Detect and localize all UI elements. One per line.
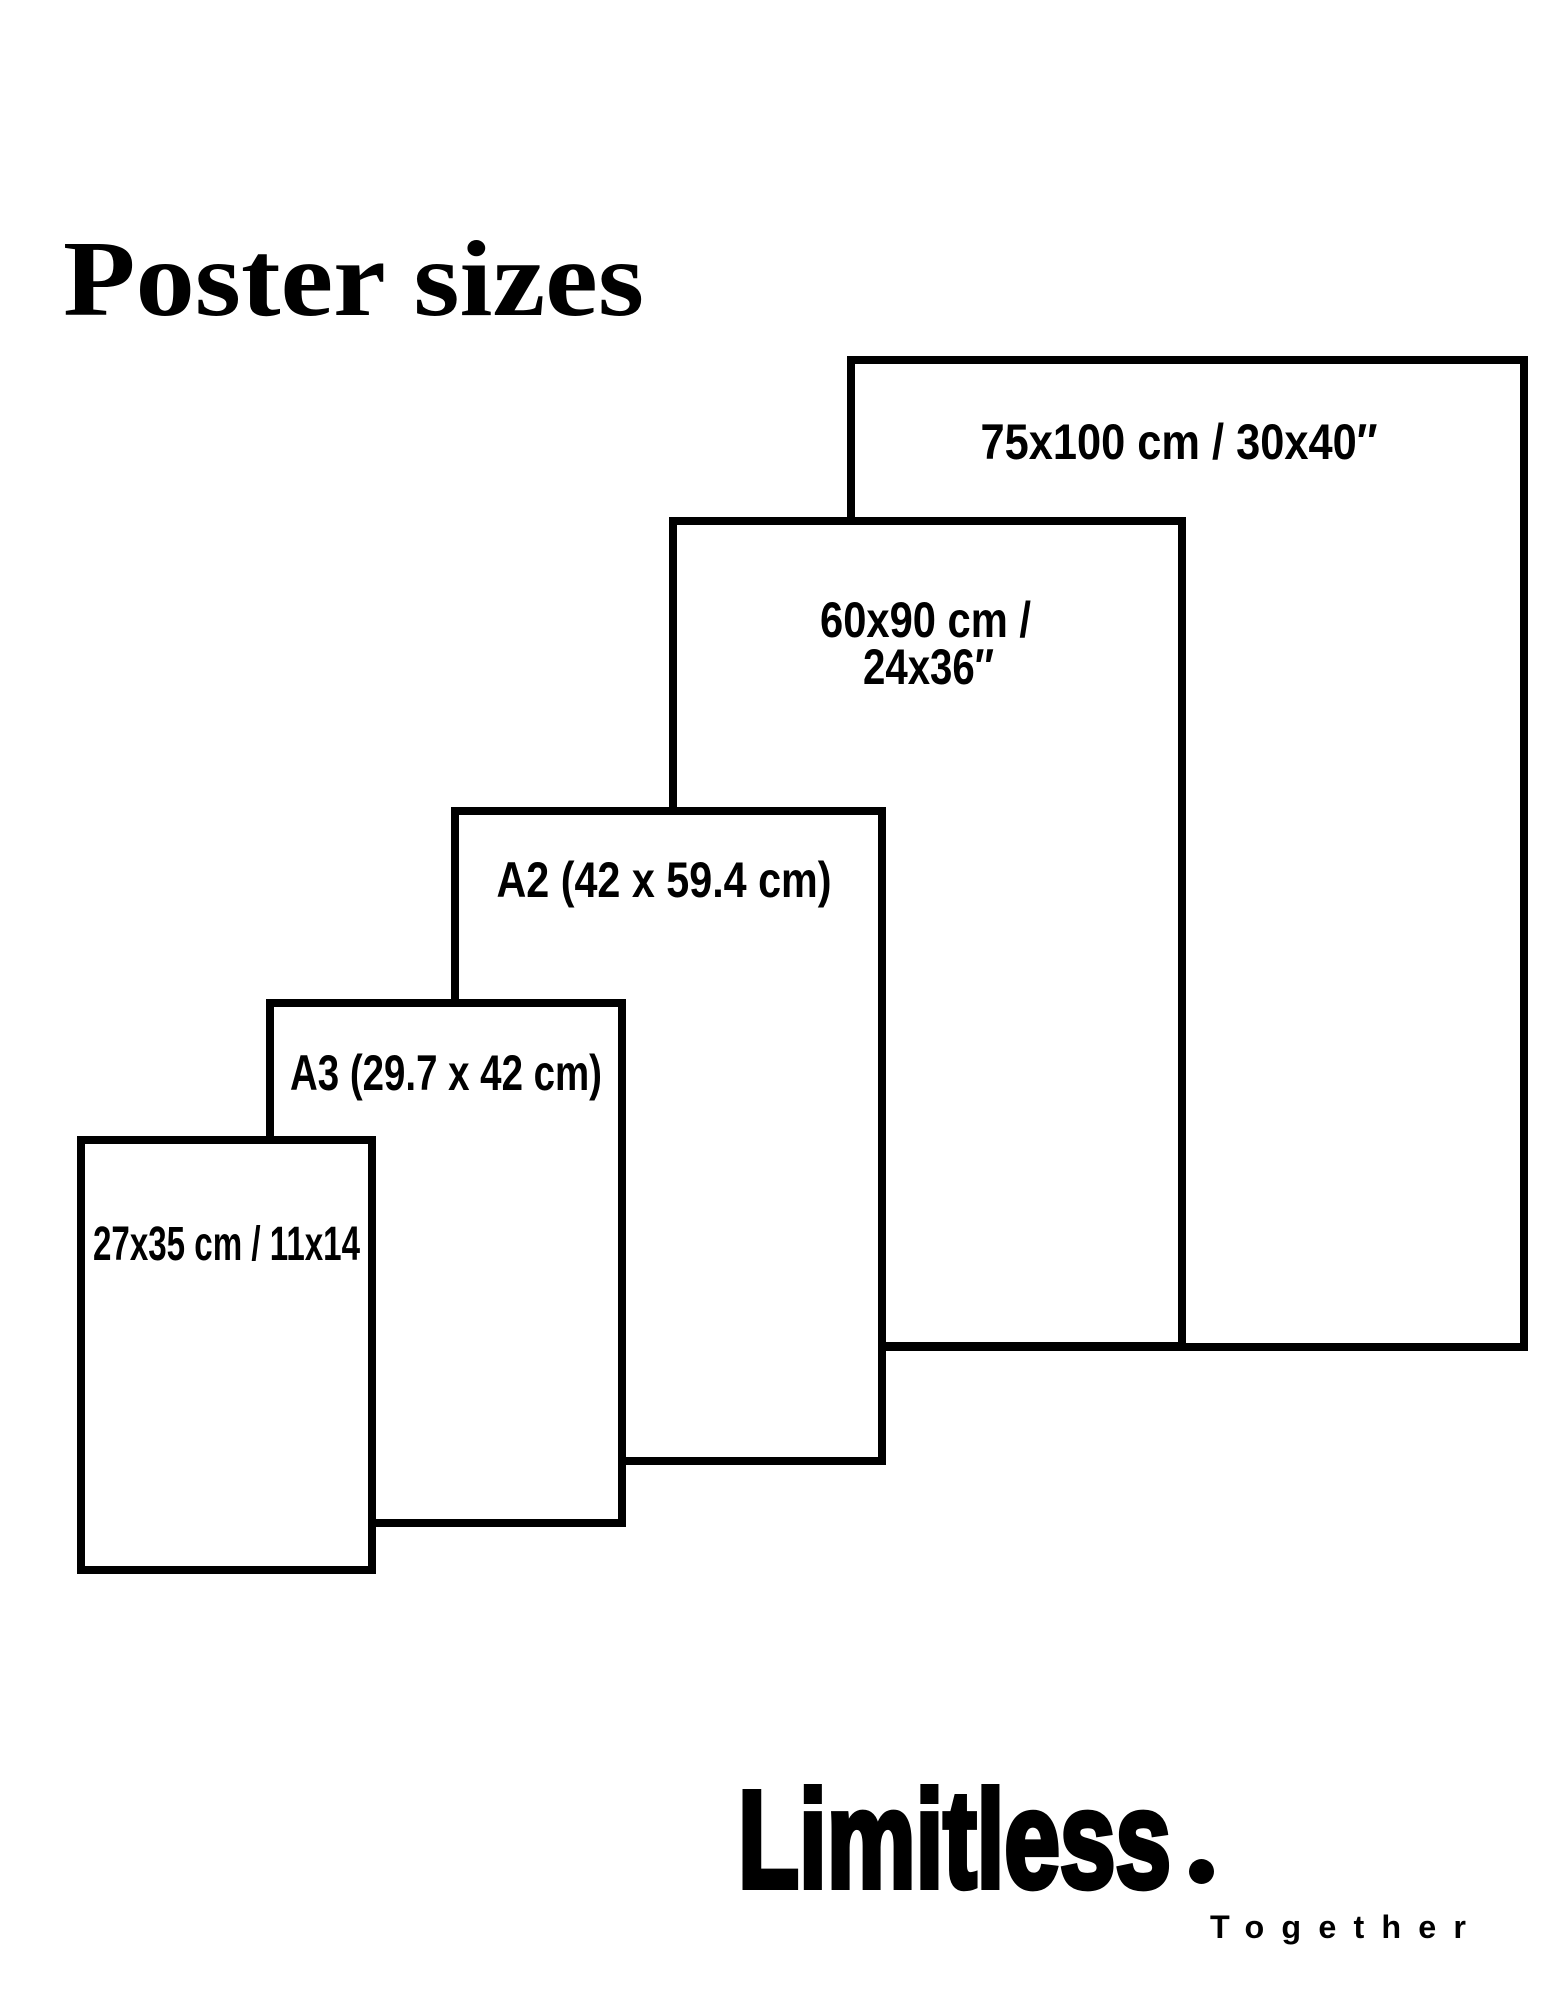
svg-text:24x36″: 24x36″ <box>863 638 994 695</box>
svg-text:27x35 cm / 11x14: 27x35 cm / 11x14 <box>93 1218 360 1271</box>
svg-text:A2 (42 x 59.4 cm): A2 (42 x 59.4 cm) <box>497 851 832 908</box>
svg-text:75x100 cm / 30x40″: 75x100 cm / 30x40″ <box>981 413 1378 470</box>
svg-text:Poster sizes: Poster sizes <box>63 220 644 339</box>
svg-text:A3 (29.7 x 42 cm): A3 (29.7 x 42 cm) <box>290 1044 602 1101</box>
svg-text:Limitless: Limitless <box>738 1763 1171 1917</box>
